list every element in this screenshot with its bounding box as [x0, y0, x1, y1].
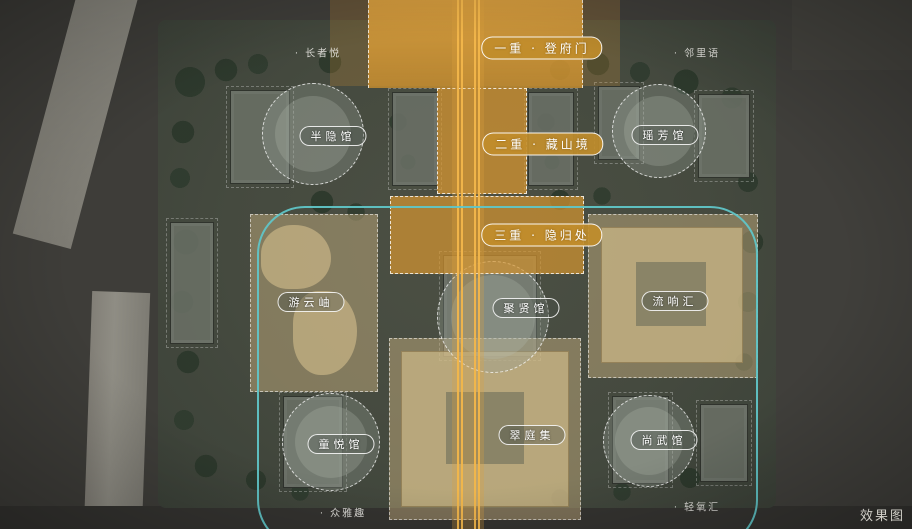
poi-label-oxygen: · 轻氧汇	[674, 499, 720, 514]
venue-label-cuitingji: 翠庭集	[499, 425, 566, 445]
venue-label-shangwu-hall: 尚武馆	[631, 430, 698, 450]
venue-label-banyin-hall: 半隐馆	[300, 126, 367, 146]
masterplan-rendering: 一重 · 登府门 二重 · 藏山境 三重 · 隐归处 半隐馆 瑶芳馆 游云岫 聚…	[0, 0, 912, 529]
building-block	[170, 222, 214, 344]
teal-boundary-outline	[257, 206, 758, 529]
poi-label-gathering: · 众雅趣	[320, 505, 366, 520]
rendering-watermark: 效果图	[860, 505, 905, 524]
building-block	[698, 94, 750, 178]
venue-label-liuxianghui: 流响汇	[642, 291, 709, 311]
poi-label-elders: · 长者悦	[295, 45, 341, 60]
poi-label-neighbors: · 邻里语	[674, 45, 720, 60]
building-block	[392, 92, 438, 186]
venue-label-juxian-hall: 聚贤馆	[493, 298, 560, 318]
axis-label-third-retreat: 三重 · 隐归处	[481, 224, 602, 247]
axis-label-second-realm: 二重 · 藏山境	[482, 133, 603, 156]
venue-label-yaofang-hall: 瑶芳馆	[632, 125, 699, 145]
axis-label-first-gate: 一重 · 登府门	[481, 37, 602, 60]
venue-label-tongyue-hall: 童悦馆	[308, 434, 375, 454]
venue-label-youyunxiu: 游云岫	[278, 292, 345, 312]
